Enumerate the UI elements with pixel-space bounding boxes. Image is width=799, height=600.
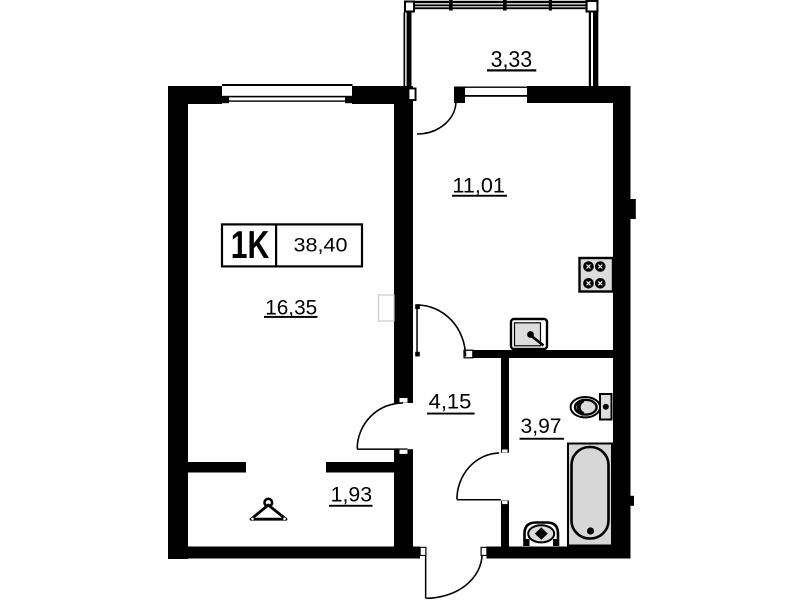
svg-text:11,01: 11,01	[452, 174, 505, 197]
svg-text:4,15: 4,15	[429, 390, 472, 413]
svg-text:1,93: 1,93	[331, 483, 373, 506]
svg-text:3,33: 3,33	[491, 46, 533, 72]
svg-text:38,40: 38,40	[294, 235, 348, 257]
svg-text:3,97: 3,97	[521, 415, 562, 438]
svg-text:1K: 1K	[231, 224, 270, 267]
